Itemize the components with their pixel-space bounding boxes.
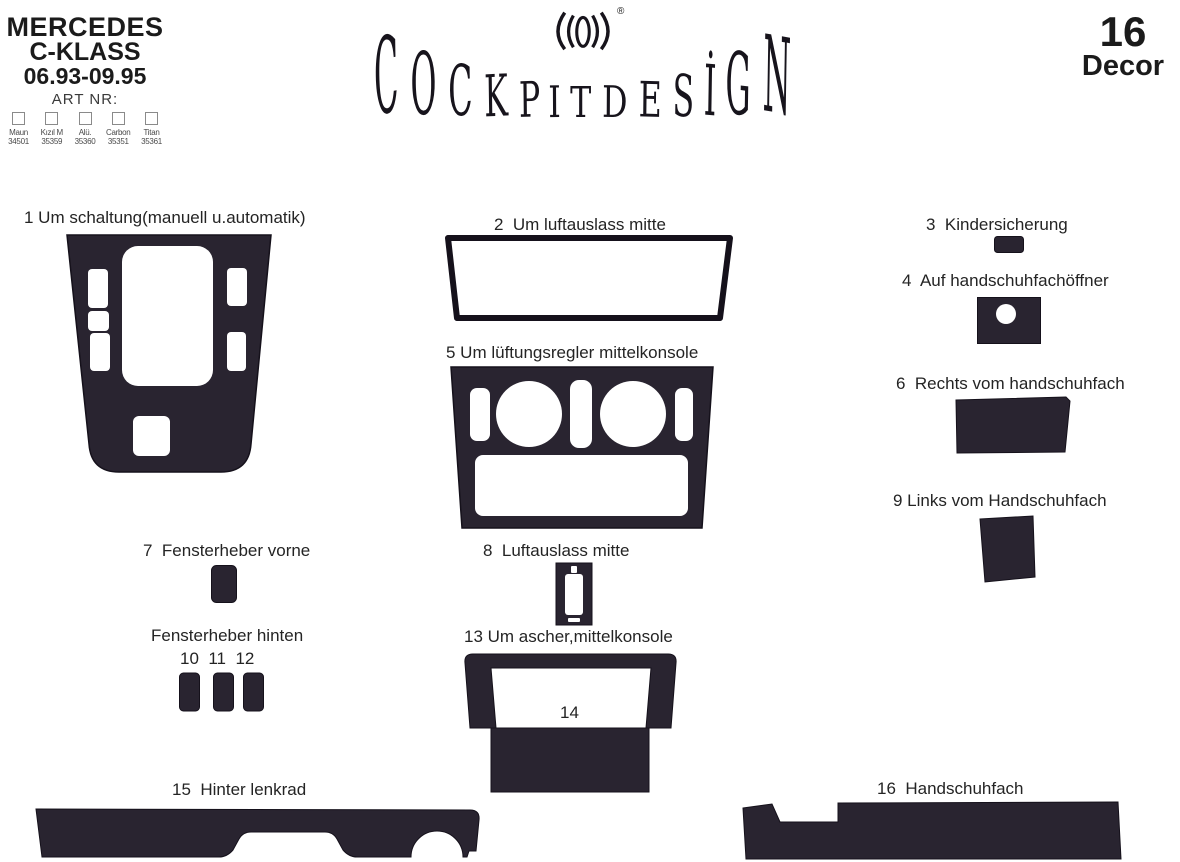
part-5-shape	[449, 365, 715, 531]
variant-carbon: Carbon 35351	[102, 128, 135, 146]
cockpitdesign-logo: ® COCKPITDESİGN	[438, 4, 728, 124]
part-2-shape	[444, 234, 734, 324]
part-6-shape	[952, 395, 1072, 455]
part-13-label: 13 Um ascher,mittelkonsole	[464, 627, 673, 647]
variant-titan: Titan 35361	[135, 128, 168, 146]
brand-years: 06.93-09.95	[2, 65, 168, 88]
part-8-label: 8 Luftauslass mitte	[483, 541, 629, 561]
variant-checkbox-carbon	[112, 112, 125, 125]
part-6-label: 6 Rechts vom handschuhfach	[896, 374, 1125, 394]
piece-count-word: Decor	[1068, 52, 1178, 81]
variant-alu: Alü. 35360	[69, 128, 102, 146]
brand-block: MERCEDES C-KLASS 06.93-09.95 ART NR: Mau…	[2, 14, 168, 146]
part-4-label: 4 Auf handschuhfachöffner	[902, 271, 1109, 291]
piece-count-block: 16 Decor	[1068, 12, 1178, 81]
variant-checkbox-maun	[12, 112, 25, 125]
part-7-shape	[211, 565, 237, 603]
part-7-label: 7 Fensterheber vorne	[143, 541, 310, 561]
brand-make: MERCEDES	[2, 14, 168, 41]
variant-kizil: Kızıl M 35359	[35, 128, 68, 146]
variant-checkbox-row	[12, 112, 158, 125]
part-3-label: 3 Kindersicherung	[926, 215, 1068, 235]
part-16-label: 16 Handschuhfach	[877, 779, 1024, 799]
part-5-label: 5 Um lüftungsregler mittelkonsole	[446, 343, 698, 363]
variant-checkbox-titan	[145, 112, 158, 125]
variant-label-row: Maun 34501 Kızıl M 35359 Alü. 35360 Carb…	[2, 128, 168, 146]
part-1-shape	[60, 234, 272, 474]
part-13-shape	[462, 650, 680, 730]
variant-checkbox-kizil	[45, 112, 58, 125]
part-9-label: 9 Links vom Handschuhfach	[893, 491, 1107, 511]
piece-count-number: 16	[1068, 12, 1178, 52]
product-sheet: MERCEDES C-KLASS 06.93-09.95 ART NR: Mau…	[0, 0, 1180, 862]
logo-letters: COCKPITDESİGN	[438, 18, 728, 120]
parts-10-11-12-shape	[179, 672, 264, 712]
part-9-shape	[976, 514, 1038, 584]
part-2-label: 2 Um luftauslass mitte	[494, 215, 666, 235]
registered-mark: ®	[617, 6, 624, 17]
part-4-shape	[977, 297, 1041, 344]
variant-checkbox-alu	[79, 112, 92, 125]
part-3-shape	[994, 236, 1024, 253]
part-14-shape	[490, 727, 650, 793]
brand-model: C-KLASS	[2, 41, 168, 65]
parts-10-11-12-label: 10 11 12	[180, 649, 254, 669]
variant-maun: Maun 34501	[2, 128, 35, 146]
part-15-shape	[34, 807, 486, 859]
part-16-shape	[741, 800, 1123, 860]
art-nr-label: ART NR:	[2, 91, 168, 108]
fensterheber-hinten-label: Fensterheber hinten	[151, 626, 303, 646]
part-8-shape	[554, 561, 594, 627]
part-15-label: 15 Hinter lenkrad	[172, 780, 306, 800]
part-1-label: 1 Um schaltung(manuell u.automatik)	[24, 208, 306, 228]
